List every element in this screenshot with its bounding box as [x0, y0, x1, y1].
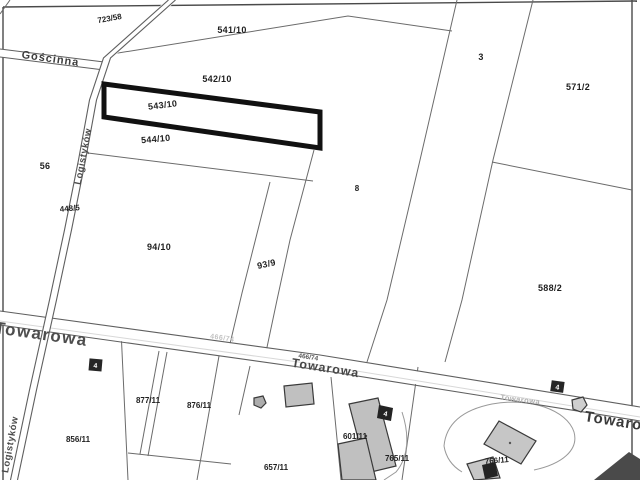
road-logistykow-edge-left — [11, 0, 169, 480]
building-small-top — [284, 383, 314, 407]
boundary-544-94 — [88, 153, 313, 181]
parcel-label-856-11: 856/11 — [66, 435, 91, 444]
badge-left: 4 — [89, 358, 103, 371]
boundary-657-601 — [331, 377, 341, 480]
boundary-8-3 — [367, 0, 457, 362]
contour-766-yard-inner — [444, 446, 462, 472]
parcel-label-876-11: 876/11 — [187, 401, 212, 410]
street-label-logistykow-top: Logistyków — [73, 127, 95, 185]
parcel-label-723-58: 723/58 — [97, 12, 123, 25]
boundary-856-877 — [121, 330, 128, 480]
parcel-label-657-11: 657/11 — [264, 463, 289, 472]
parcel-label-3: 3 — [478, 52, 483, 62]
buildings — [254, 383, 640, 480]
parcel-label-543-10: 543/10 — [147, 98, 177, 111]
boundary-bottom-cross — [128, 453, 231, 464]
badge-left-number: 4 — [93, 363, 98, 370]
parcel-label-94-10: 94/10 — [147, 242, 171, 252]
parcel-label-766-11: 766/11 — [484, 455, 509, 466]
boundary-541-542 — [112, 16, 452, 54]
parcel-label-448-5: 448/5 — [59, 203, 80, 214]
parcel-label-544-10: 544/10 — [141, 133, 171, 146]
parcel-label-877-11: 877/11 — [136, 396, 161, 405]
parcel-label-93-9: 93/9 — [256, 257, 276, 271]
parcel-label-56: 56 — [40, 161, 51, 171]
pond-blob-left — [254, 396, 266, 408]
parcel-label-542-10: 542/10 — [202, 74, 231, 84]
map-border — [0, 0, 637, 480]
map-canvas: 4 4 4 723/58 Gościnna 541/10 542/10 543/… — [0, 0, 640, 480]
cadastral-map: 4 4 4 723/58 Gościnna 541/10 542/10 543/… — [0, 0, 640, 480]
boundary-short-657 — [239, 366, 250, 415]
dark-area-bottom-right — [594, 452, 640, 480]
roads — [0, 0, 640, 480]
building-766-dot — [509, 442, 511, 444]
boundary-571-588 — [492, 162, 632, 190]
badge-mid: 4 — [550, 380, 564, 393]
parcel-label-588-2: 588/2 — [538, 283, 562, 293]
border-top — [3, 1, 637, 7]
boundary-3-571 — [445, 0, 533, 362]
highlighted-parcel-543-10-outline — [104, 84, 320, 148]
road-logistykow-edge-right — [18, 0, 176, 480]
street-label-goscinna: Gościnna — [21, 49, 80, 69]
parcel-label-541-10: 541/10 — [217, 25, 246, 35]
parcel-label-765-11: 765/11 — [385, 454, 410, 463]
parcel-label-571-2: 571/2 — [566, 82, 590, 92]
parcel-label-601-11: 601/11 — [343, 432, 368, 441]
parcel-label-8: 8 — [355, 184, 360, 193]
